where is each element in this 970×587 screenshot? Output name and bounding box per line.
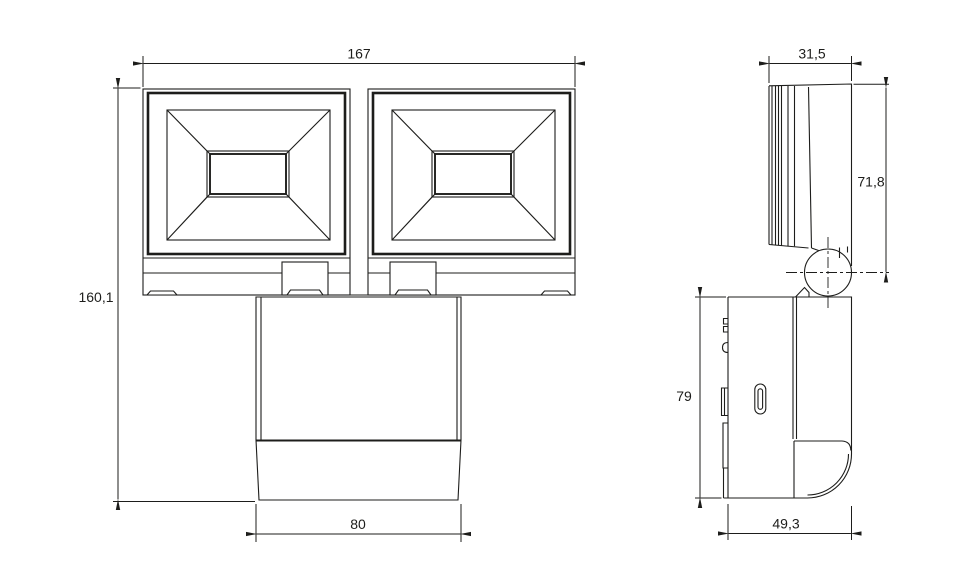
dim-label-front-height: 160,1 <box>78 289 113 305</box>
mount-box-side-cover-inner-edge <box>808 454 849 495</box>
mount-box-front-inner-edges <box>261 297 457 440</box>
mount-box-front-outline <box>256 297 461 500</box>
mount-box-slot-inner <box>758 389 763 410</box>
head-side-heatsink-fins <box>769 86 782 246</box>
head-side-body-lines <box>788 86 795 246</box>
housing-foot-left <box>147 291 177 295</box>
arm-bracket-left-foot <box>287 290 323 295</box>
head-reflector-outer <box>167 110 330 240</box>
head-lens-center-inner <box>210 154 286 194</box>
arm-bracket-right-foot <box>395 290 431 295</box>
mount-box-side-divider <box>793 297 797 439</box>
mount-box-side-clips <box>722 319 729 499</box>
floodlight-dimension-drawing: 167 160,1 80 31,5 71,8 79 <box>0 0 970 587</box>
mount-box-side-outline <box>724 297 852 498</box>
dimension-front-width: 167 <box>143 46 575 88</box>
head-lens-frame <box>148 93 345 254</box>
dimension-head-side-height: 71,8 <box>854 84 890 272</box>
head-reflector-facet-lines <box>167 110 330 240</box>
mount-box-front <box>256 297 461 500</box>
side-view-head <box>769 84 889 308</box>
housing-foot-right <box>541 291 571 295</box>
technical-drawing-page: 167 160,1 80 31,5 71,8 79 <box>0 0 970 587</box>
dimensions: 167 160,1 80 31,5 71,8 79 <box>78 46 889 543</box>
dim-label-head-depth: 31,5 <box>798 46 825 62</box>
side-view-mount <box>722 288 852 499</box>
dim-label-mount-side-height: 79 <box>676 388 692 404</box>
front-view <box>143 89 575 500</box>
dim-label-mount-side-depth: 49,3 <box>772 516 799 532</box>
dimension-mount-side-depth: 49,3 <box>728 504 852 540</box>
mount-box-side-cover <box>794 441 851 498</box>
dimension-mount-side-height: 79 <box>676 297 726 498</box>
dim-label-head-side-height: 71,8 <box>857 174 884 190</box>
dim-label-front-width: 167 <box>347 46 371 62</box>
dimension-mount-front-width: 80 <box>256 504 461 542</box>
head-lens-center-outer <box>207 151 289 197</box>
dimension-head-depth: 31,5 <box>769 46 852 84</box>
dim-label-mount-front-width: 80 <box>350 516 366 532</box>
ball-clamp-wedge <box>796 288 810 298</box>
